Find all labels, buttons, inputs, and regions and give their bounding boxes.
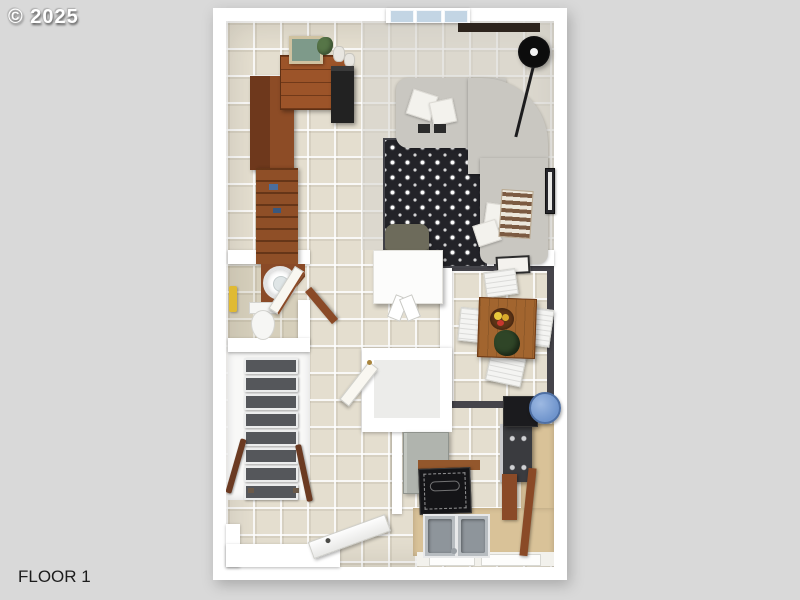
wall-picture — [545, 168, 555, 214]
wall-bracket — [293, 488, 299, 493]
wall-bracket — [248, 488, 254, 493]
kitchen-cabinet-wood — [502, 474, 517, 520]
remote-tray — [434, 124, 446, 133]
cabinet-door-panel — [481, 554, 541, 566]
fruit — [502, 314, 509, 321]
lamp-bulb — [530, 48, 538, 56]
sink-basin — [428, 519, 452, 553]
towel — [229, 286, 237, 312]
copyright-watermark: © 2025 — [8, 6, 79, 29]
door-knob — [325, 537, 331, 543]
centerpiece-plant — [494, 330, 520, 356]
floorplan-scene: © 2025 — [0, 0, 800, 600]
sink-basin — [461, 519, 485, 553]
book — [273, 208, 281, 213]
dining-chair — [483, 268, 518, 298]
kitchen-mat — [418, 467, 472, 515]
closet-interior — [374, 360, 440, 418]
floorplan — [213, 8, 567, 580]
throw-pillow — [429, 98, 457, 126]
wall-hall-kitchen — [392, 424, 402, 514]
wall-bathroom-bottom — [228, 338, 310, 352]
mat-border — [423, 472, 466, 509]
fruit — [494, 312, 502, 320]
striped-throw — [498, 189, 533, 239]
vase — [344, 53, 355, 67]
window-pane — [444, 10, 468, 23]
fruit — [497, 320, 504, 326]
blue-bowl — [529, 392, 561, 424]
closet — [362, 348, 452, 432]
floor-label: FLOOR 1 — [18, 567, 91, 587]
picture-canvas — [548, 172, 552, 210]
book — [269, 184, 278, 190]
floor-lamp — [518, 36, 550, 68]
bookshelf — [256, 168, 298, 264]
remote-tray — [418, 124, 430, 133]
kitchen-sink-right — [456, 514, 490, 558]
black-cabinet — [331, 66, 354, 123]
window-pane — [390, 10, 414, 23]
closet-hinge — [367, 360, 372, 365]
window-pane — [416, 10, 442, 23]
faucet — [451, 548, 457, 554]
mat-ornament — [430, 480, 460, 491]
accent-wall-strip — [458, 23, 540, 32]
